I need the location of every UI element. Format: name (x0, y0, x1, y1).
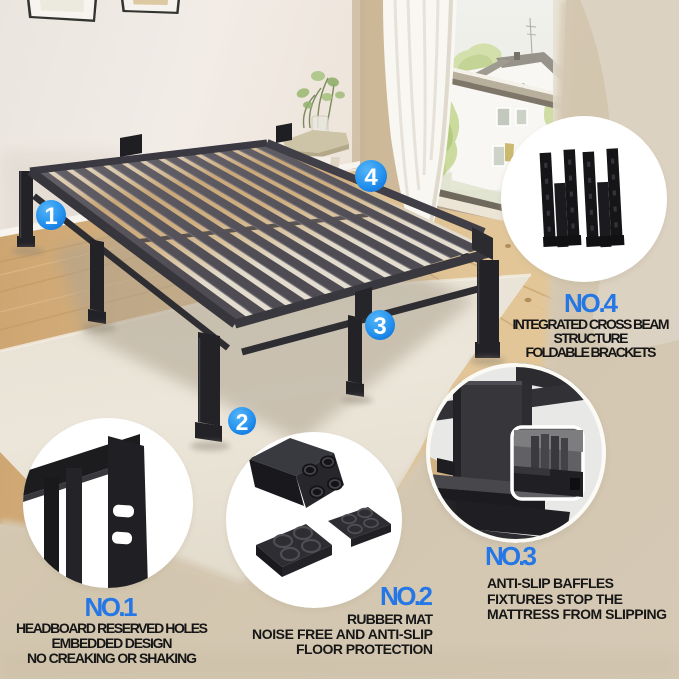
svg-text:RUBBER MAT: RUBBER MAT (347, 611, 433, 627)
svg-text:FIXTURES STOP THE: FIXTURES STOP THE (487, 591, 623, 607)
svg-text:NO.2: NO.2 (380, 581, 433, 611)
svg-text:EMBEDDED DESIGN: EMBEDDED DESIGN (52, 635, 173, 651)
svg-text:3: 3 (373, 313, 386, 340)
svg-text:2: 2 (236, 409, 249, 435)
svg-text:1: 1 (44, 203, 57, 230)
svg-text:FOLDABLE BRACKETS: FOLDABLE BRACKETS (526, 344, 657, 360)
svg-text:NOISE FREE AND ANTI-SLIP: NOISE FREE AND ANTI-SLIP (252, 626, 433, 642)
svg-text:NO.1: NO.1 (85, 592, 138, 622)
svg-text:FLOOR PROTECTION: FLOOR PROTECTION (296, 641, 433, 657)
svg-text:NO.3: NO.3 (485, 541, 537, 571)
svg-text:MATTRESS FROM SLIPPING: MATTRESS FROM SLIPPING (487, 606, 667, 622)
svg-text:4: 4 (364, 164, 378, 191)
svg-text:NO.4: NO.4 (564, 288, 619, 318)
svg-text:NO CREAKING OR SHAKING: NO CREAKING OR SHAKING (27, 650, 197, 666)
svg-text:ANTI-SLIP BAFFLES: ANTI-SLIP BAFFLES (487, 575, 614, 591)
svg-text:HEADBOARD RESERVED HOLES: HEADBOARD RESERVED HOLES (16, 620, 208, 636)
